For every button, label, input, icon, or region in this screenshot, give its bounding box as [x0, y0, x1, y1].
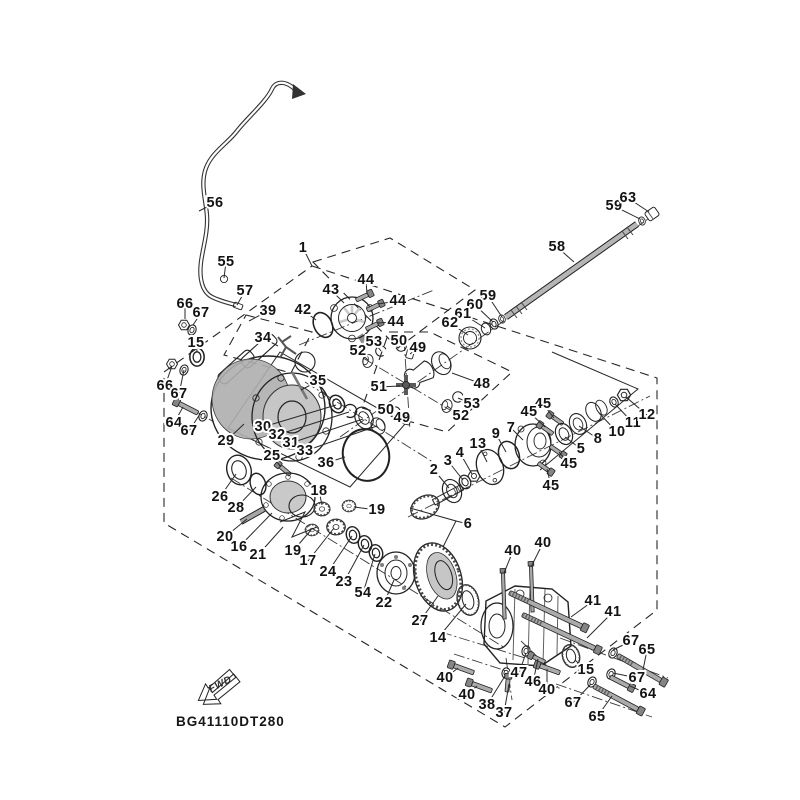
part-label-50: 50	[391, 333, 408, 349]
part-label-52: 52	[350, 343, 367, 359]
part-label-26: 26	[212, 489, 229, 505]
part-label-8: 8	[594, 431, 602, 447]
part-label-33: 33	[297, 443, 314, 459]
part-label-67: 67	[565, 695, 582, 711]
seal-30	[326, 393, 347, 416]
part-label-28: 28	[228, 500, 245, 516]
part-label-67: 67	[181, 423, 198, 439]
part-label-48: 48	[474, 376, 491, 392]
part-label-5: 5	[577, 441, 585, 457]
part-label-13: 13	[470, 436, 487, 452]
part-label-67: 67	[629, 670, 646, 686]
part-label-49: 49	[410, 340, 427, 356]
assembly-outline-main	[164, 266, 657, 727]
part-label-19: 19	[369, 502, 386, 518]
part-label-34: 34	[255, 330, 272, 346]
part-label-40: 40	[535, 535, 552, 551]
part-label-65: 65	[639, 642, 656, 658]
part-label-7: 7	[507, 420, 515, 436]
part-label-43: 43	[323, 282, 340, 298]
part-label-41: 41	[585, 593, 602, 609]
joint-yoke-10	[583, 396, 611, 424]
part-label-40: 40	[539, 682, 556, 698]
cup-52b	[440, 398, 453, 413]
part-label-40: 40	[437, 670, 454, 686]
bolt-45a	[546, 410, 565, 427]
part-label-18: 18	[311, 483, 328, 499]
part-label-56: 56	[207, 195, 224, 211]
part-label-23: 23	[336, 574, 353, 590]
bolt-45b	[536, 420, 555, 437]
part-label-9: 9	[492, 426, 500, 442]
part-label-52: 52	[453, 408, 470, 424]
part-label-40: 40	[459, 687, 476, 703]
part-label-53: 53	[366, 334, 383, 350]
ring-gear-27	[405, 537, 470, 618]
part-label-42: 42	[295, 302, 312, 318]
o-ring-42	[309, 309, 336, 340]
shim-54	[367, 543, 384, 563]
part-label-57: 57	[237, 283, 254, 299]
part-label-16: 16	[231, 539, 248, 555]
part-label-45: 45	[543, 478, 560, 494]
part-label-65: 65	[589, 709, 606, 725]
fwd-arrow: FWD	[193, 668, 244, 713]
gear-17	[327, 519, 345, 535]
part-label-21: 21	[250, 547, 267, 563]
cv-joint-62	[459, 327, 481, 349]
part-label-36: 36	[318, 455, 335, 471]
part-label-41: 41	[605, 604, 622, 620]
nut-63	[644, 206, 660, 221]
part-label-6: 6	[464, 516, 472, 532]
part-label-54: 54	[355, 585, 372, 601]
oil-seal-14	[454, 582, 482, 617]
part-label-67: 67	[171, 386, 188, 402]
part-label-15: 15	[188, 335, 205, 351]
part-label-3: 3	[444, 453, 452, 469]
diagram-code: BG41110DT280	[176, 714, 285, 729]
part-label-63: 63	[620, 190, 637, 206]
shift-fork	[278, 336, 296, 358]
ring-59b	[638, 216, 647, 226]
part-label-66: 66	[177, 296, 194, 312]
part-label-29: 29	[218, 433, 235, 449]
o-ring-9	[495, 438, 523, 471]
part-label-50: 50	[378, 402, 395, 418]
part-label-40: 40	[505, 543, 522, 559]
part-label-67: 67	[623, 633, 640, 649]
propeller-shaft	[506, 224, 637, 318]
part-label-39: 39	[260, 303, 277, 319]
part-label-45: 45	[521, 404, 538, 420]
part-label-58: 58	[549, 239, 566, 255]
part-label-44: 44	[390, 293, 407, 309]
part-label-2: 2	[430, 462, 438, 478]
part-label-12: 12	[639, 407, 656, 423]
part-label-35: 35	[310, 373, 327, 389]
part-label-44: 44	[358, 272, 375, 288]
part-label-38: 38	[479, 697, 496, 713]
part-label-44: 44	[388, 314, 405, 330]
washer-11	[608, 396, 620, 409]
part-label-22: 22	[376, 595, 393, 611]
part-label-4: 4	[456, 445, 464, 461]
part-label-49: 49	[394, 410, 411, 426]
screw-44c	[365, 318, 385, 332]
side-gear-19a	[342, 500, 356, 512]
diagram-canvas: 1565557666739424344444434153566676467293…	[0, 0, 800, 800]
part-label-45: 45	[561, 456, 578, 472]
part-label-55: 55	[218, 254, 235, 270]
bearing-8	[566, 411, 590, 437]
part-label-62: 62	[442, 315, 459, 331]
part-label-51: 51	[371, 379, 388, 395]
bearing-hub-22	[377, 552, 415, 594]
part-label-64: 64	[640, 686, 657, 702]
spider-51	[396, 375, 416, 395]
part-label-10: 10	[609, 424, 626, 440]
part-label-1: 1	[299, 240, 307, 256]
part-label-67: 67	[193, 305, 210, 321]
part-label-15: 15	[578, 662, 595, 678]
part-label-17: 17	[300, 553, 317, 569]
part-label-24: 24	[320, 564, 337, 580]
part-label-14: 14	[430, 630, 447, 646]
hose-tip-icon	[292, 84, 306, 99]
part-label-37: 37	[496, 705, 513, 721]
part-label-25: 25	[264, 448, 281, 464]
part-label-27: 27	[412, 613, 429, 629]
clip-53b	[451, 390, 463, 403]
parts-diagram: 1565557666739424344444434153566676467293…	[0, 0, 800, 800]
